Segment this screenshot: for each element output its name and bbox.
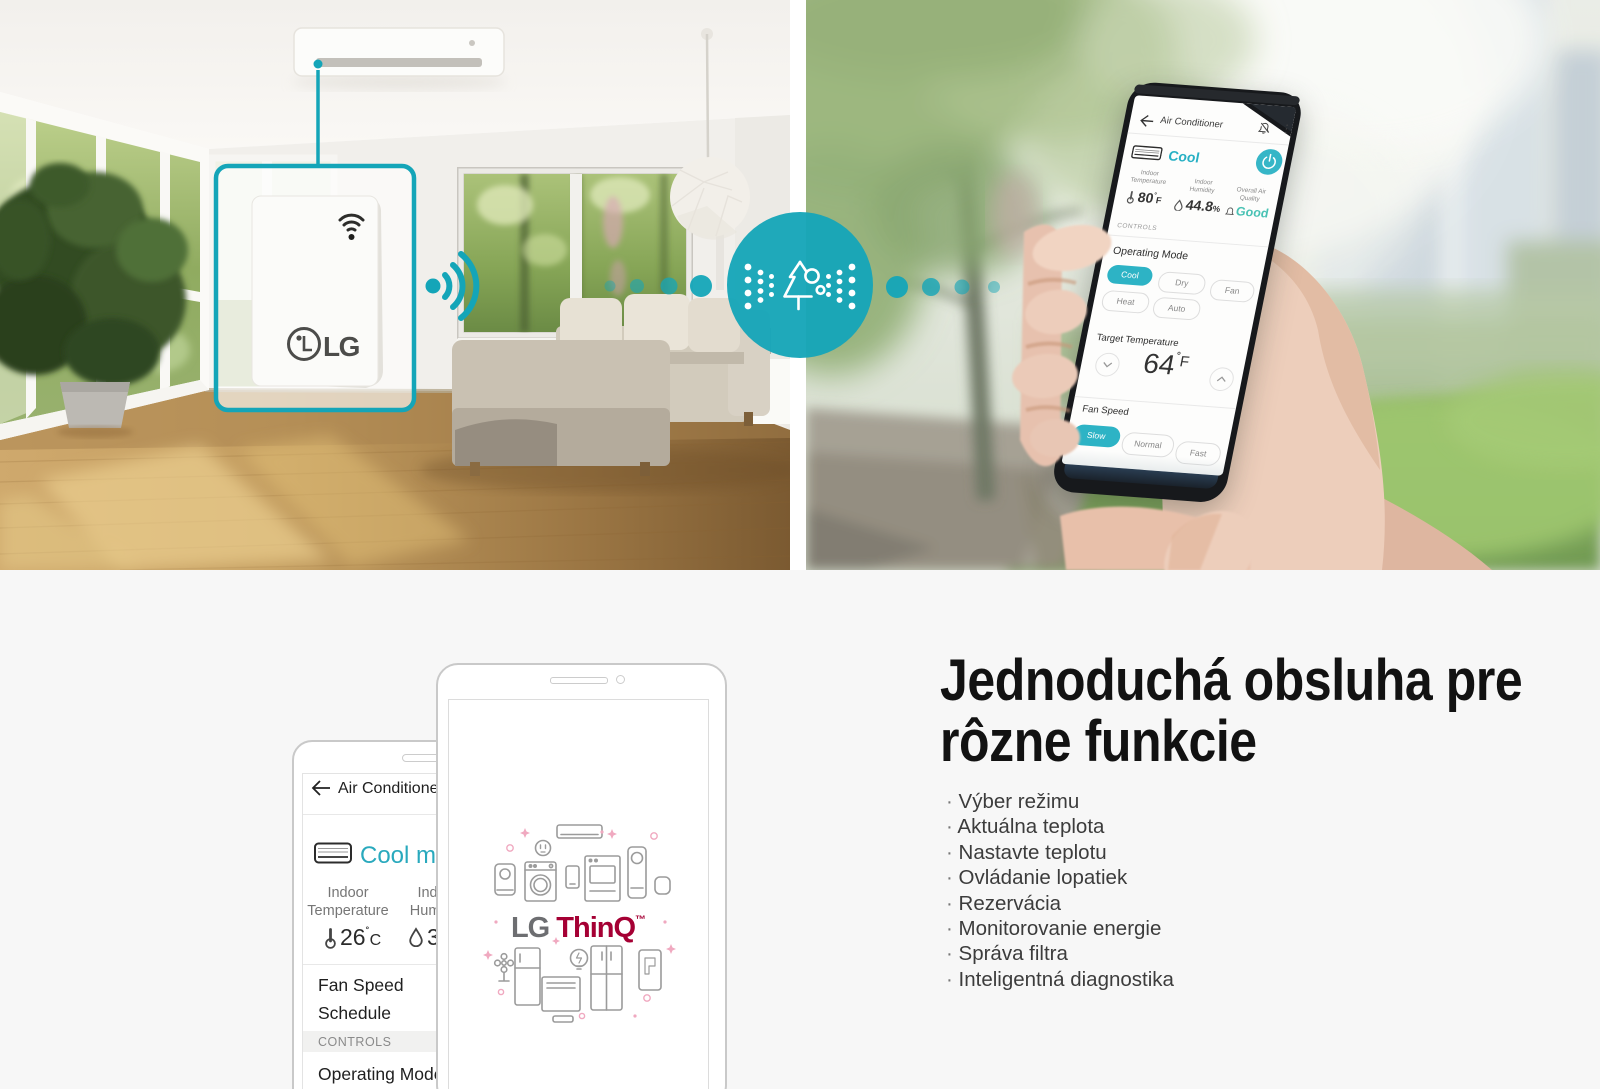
svg-text:LG: LG — [323, 331, 360, 362]
